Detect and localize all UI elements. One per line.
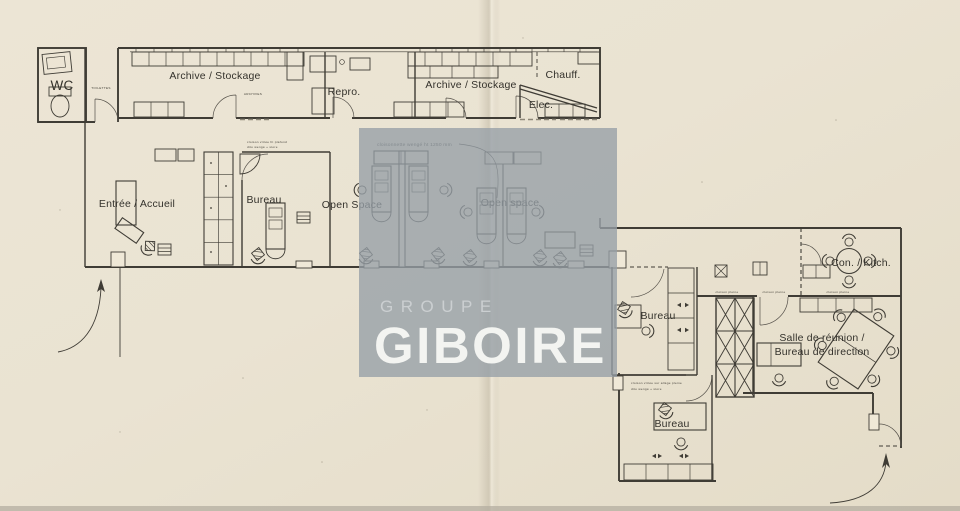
label-bureau-3: Bureau	[654, 418, 689, 430]
label-chauff: Chauff.	[545, 69, 580, 81]
label-repro: Repro.	[328, 86, 361, 98]
annotation-bureau3-note-2: dito wengé + store	[631, 387, 662, 391]
label-entree-accueil: Entrée / Accueil	[99, 198, 175, 210]
annotation-bureau3-note-1: cloison vitrée sur allège pleine	[631, 381, 682, 385]
label-archive-stockage-2: Archive / Stockage	[425, 79, 516, 91]
label-salle-reunion-1: Salle de réunion /	[779, 332, 864, 344]
label-archive-stockage-1: Archive / Stockage	[169, 70, 260, 82]
annotation-cloison-pleine-2: cloison pleine	[763, 290, 786, 294]
label-archives-small: ARCHIVES	[244, 92, 262, 96]
label-elec: Elec.	[529, 99, 553, 111]
label-con-kitch: Con. / Kitch.	[831, 257, 891, 269]
watermark: GROUPE GIBOIRE	[359, 128, 617, 377]
label-bureau-1: Bureau	[246, 194, 281, 206]
label-salle-reunion-2: Bureau de direction	[775, 346, 870, 358]
watermark-groupe: GROUPE	[380, 297, 499, 316]
annotation-bureau1-note-1: cloison vitrée ht plafond	[247, 140, 287, 144]
watermark-giboire: GIBOIRE	[374, 317, 607, 374]
scan-bottom-edge	[0, 506, 960, 511]
label-bureau-2: Bureau	[640, 310, 675, 322]
annotation-bureau1-note-2: dito wengé + store	[247, 145, 278, 149]
annotation-cloison-pleine-3: cloison pleine	[827, 290, 850, 294]
floor-plan-scan: WC TOILETTES Archive / Stockage ARCHIVES…	[0, 0, 960, 511]
floor-plan-svg: WC TOILETTES Archive / Stockage ARCHIVES…	[0, 0, 960, 511]
annotation-cloison-pleine-1: cloison pleine	[716, 290, 739, 294]
label-toilettes: TOILETTES	[91, 86, 111, 90]
label-wc: WC	[51, 78, 74, 93]
